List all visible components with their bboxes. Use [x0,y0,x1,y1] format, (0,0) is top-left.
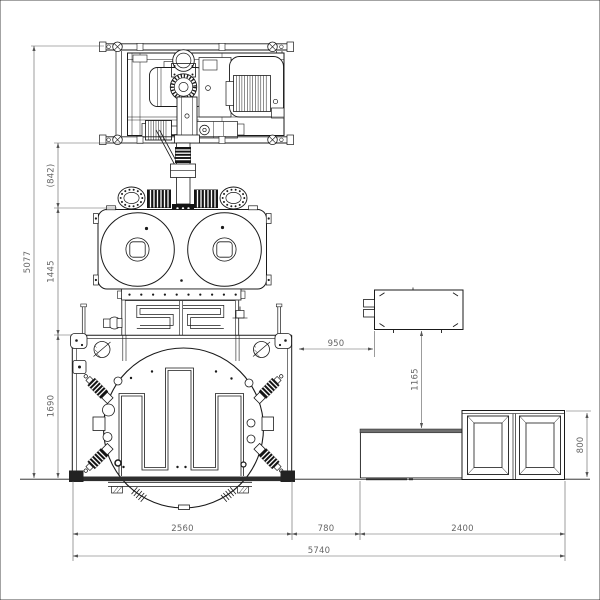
side-clamp [236,311,244,319]
box-tab [364,300,375,308]
arc-ticks-left [132,487,147,502]
frame-corner-right [275,334,292,349]
twin-drum-unit [94,206,272,300]
drum-left [101,213,175,287]
corner-clamp-ne [253,371,286,404]
dimensions: 5077 (842) 1445 1690 950 1165 800 2560 7… [23,46,591,561]
bench-top [360,429,462,433]
dim-label-box-to-bench: 1165 [411,368,421,390]
meander-channel [119,368,244,476]
corner-clamp-nw [81,371,114,404]
rotary-table [104,348,264,508]
corner-clamp-sw [81,443,114,476]
dim-label-gap-width: 780 [318,524,335,534]
bolt-band [118,289,246,300]
control-box [364,288,464,334]
arc-ticks-right [221,487,236,502]
dim-label-arm-gap: (842) [47,164,57,188]
cabinet [462,411,565,480]
dim-label-overall-width: 5740 [308,546,330,556]
dim-label-table-to-box: 950 [328,339,345,349]
bellows-right [194,187,247,209]
drum-right [188,213,262,287]
section-symbol-right [253,342,270,358]
dim-label-table-width: 2560 [171,524,193,534]
machine-layout-drawing: 5077 (842) 1445 1690 950 1165 800 2560 7… [0,0,600,600]
section-symbol-left [94,342,111,358]
gantry-top-rail [100,42,294,52]
coil-plate [104,301,248,362]
dim-label-bench-width: 2400 [451,524,473,534]
frame-corner-left [71,334,88,349]
rotary-table-unit [69,304,295,510]
dim-label-overall-height: 5077 [23,251,33,273]
dim-label-table-height: 1690 [47,395,57,417]
pump-unit [197,122,245,139]
bellows-left [118,187,171,209]
work-bench [360,429,462,480]
dim-label-cabinet-height: 800 [576,437,586,454]
paper-background [0,0,600,600]
dim-label-drum-to-table: 1445 [47,260,57,282]
box-tab [364,310,375,318]
frame-bottom-bar [71,477,293,482]
